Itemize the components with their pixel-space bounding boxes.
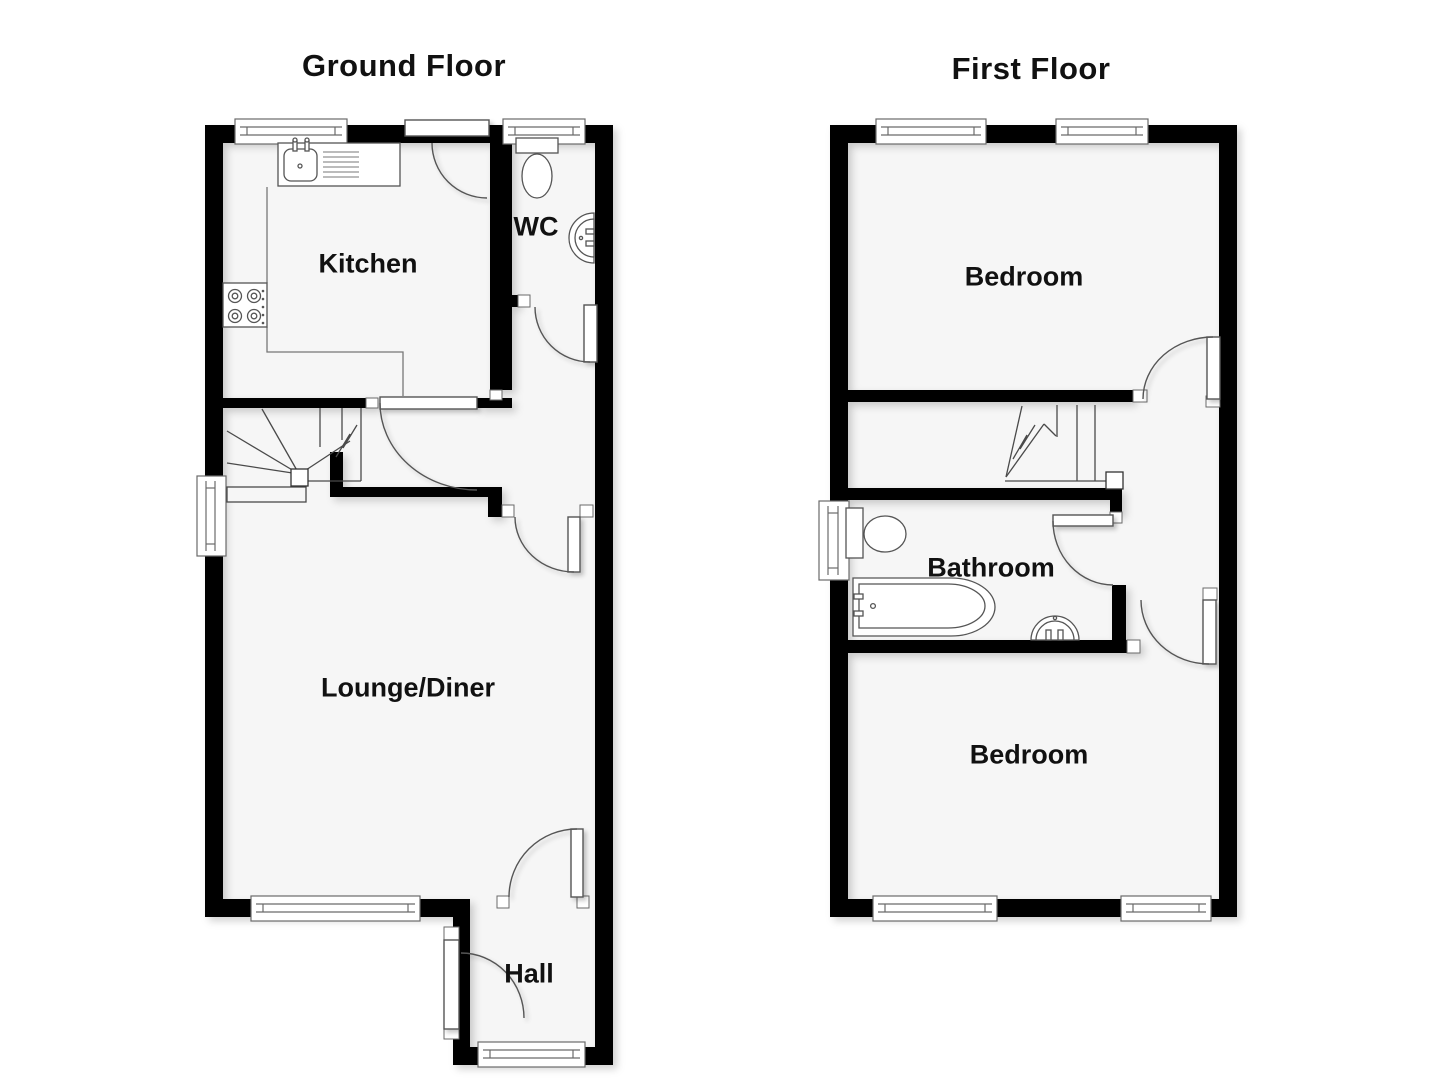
lounge-window <box>251 896 420 921</box>
room-label-lounge-diner: Lounge/Diner <box>321 673 495 704</box>
floorplan-drawing <box>0 0 1440 1080</box>
floorplan-page: Ground Floor First Floor Kitchen WC Loun… <box>0 0 1440 1080</box>
hall-window <box>478 1042 585 1067</box>
bedroom-back-window-2 <box>1121 896 1211 921</box>
kitchen-window <box>235 119 347 144</box>
bedroom-back-window-1 <box>873 896 997 921</box>
first-floor-title: First Floor <box>952 51 1111 87</box>
hob <box>223 283 267 327</box>
room-label-bathroom: Bathroom <box>927 553 1055 584</box>
ground-floor-title: Ground Floor <box>302 48 506 84</box>
room-label-hall: Hall <box>504 959 554 990</box>
room-label-kitchen: Kitchen <box>318 249 417 280</box>
bathroom-window <box>819 501 849 580</box>
stairs-side-window <box>197 476 226 556</box>
bathroom-bath <box>853 578 995 636</box>
room-label-bedroom-front: Bedroom <box>965 262 1084 293</box>
first-floor-plan <box>819 119 1237 921</box>
bedroom-front-window-2 <box>1056 119 1148 144</box>
bedroom-front-window-1 <box>876 119 986 144</box>
room-label-bedroom-back: Bedroom <box>970 740 1089 771</box>
room-label-wc: WC <box>514 212 559 243</box>
